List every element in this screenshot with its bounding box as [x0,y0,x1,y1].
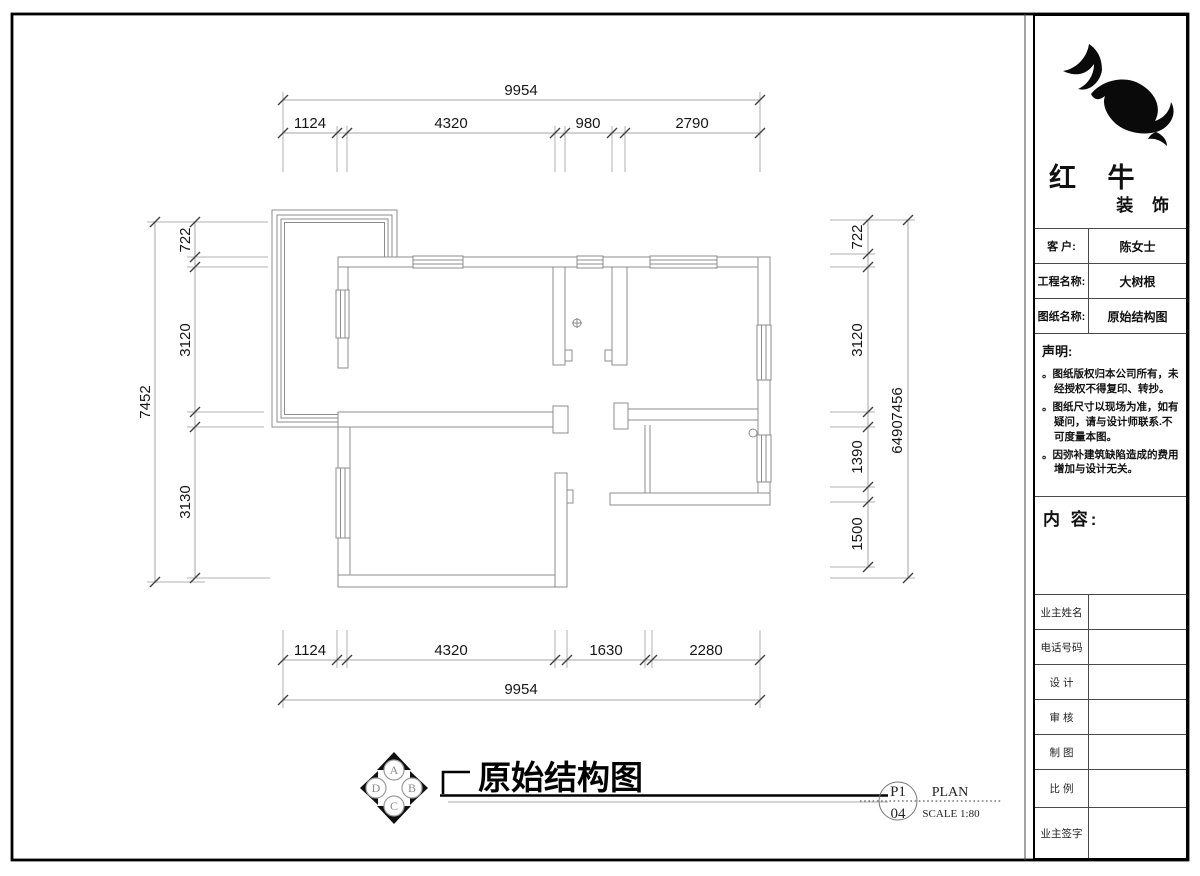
dim-right-seg1: 722 [849,224,866,249]
dimension-left: 7452 722 3120 3130 [137,217,270,587]
compass-letter-c: C [390,799,398,813]
dim-top-seg4: 2790 [675,115,708,132]
info-row-project: 工程名称: 大树根 [1035,263,1186,298]
drawing-title: 原始结构图 [440,759,888,802]
dim-right-seg4: 1500 [849,517,866,550]
dim-top-seg3: 980 [575,115,600,132]
window-right-upper [757,325,771,380]
dim-bottom-seg1: 1124 [294,642,326,659]
brand-suffix: 装 饰 [1116,191,1176,216]
dimension-top: 9954 1124 4320 980 2790 [278,82,765,172]
owner-name-cell [1089,595,1186,629]
window-top-3 [650,256,717,268]
scale-label: SCALE 1:80 [922,808,980,820]
dim-top-seg1: 1124 [294,115,326,132]
project-value: 大树根 [1089,264,1186,298]
drafter-cell [1089,735,1186,769]
form-row-designer: 设 计 [1035,664,1186,699]
reviewer-cell [1089,700,1186,734]
wall-bottom-left-room [338,575,567,587]
dim-left-overall: 7452 [137,385,154,418]
form-row-reviewer: 审 核 [1035,699,1186,734]
dimension-right: 722 3120 1390 1500 7456 6490 [830,215,915,583]
window-top-1 [413,256,463,268]
scale-row-label: 比 例 [1035,770,1089,807]
wall-bottom-right-room [610,493,770,505]
designer-label: 设 计 [1035,665,1089,699]
door-jamb-bottom-room [567,490,573,503]
statement-section: 声明: 。图纸版权归本公司所有，未经授权不得复印、转抄。 。图纸尺寸以现场为准，… [1035,333,1186,496]
wall-bathroom-end-cap [614,403,628,429]
wall-bathroom-top [628,409,758,420]
form-row-drafter: 制 图 [1035,734,1186,769]
window-right-lower [757,435,771,482]
wall-middle-end-cap [553,406,568,433]
door-jamb-right [605,350,612,361]
fixtures [572,318,757,493]
dimension-bottom: 1124 4320 1630 2280 9954 [278,630,765,708]
content-label: 内 容: [1043,505,1178,530]
dim-left-seg1: 722 [177,227,194,252]
dim-right-overall-a: 7456 [889,387,906,420]
balcony-outline [272,210,397,427]
window-top-2 [577,256,603,268]
project-label: 工程名称: [1035,264,1089,298]
north-compass-icon: A B C D [360,752,428,824]
title-block: 红 牛 装 饰 客 户: 陈女士 工程名称: 大树根 图纸名称: 原始结构图 声… [1033,14,1188,860]
page-border [12,14,1188,860]
walls [338,257,770,587]
client-value: 陈女士 [1089,229,1186,263]
dim-right-overall-b: 6490 [889,420,906,453]
dim-right-seg2: 3120 [849,323,866,356]
plan-label: PLAN [932,785,969,800]
door-jamb-left [565,350,572,361]
compass-letter-d: D [372,781,381,795]
wall-middle [338,412,553,427]
statement-item: 。因弥补建筑缺陷造成的费用增加与设计无关。 [1042,448,1180,478]
pivot-symbol [572,318,582,328]
form-row-phone: 电话号码 [1035,629,1186,664]
owner-signature-label: 业主签字 [1035,808,1089,858]
dim-bottom-seg2: 4320 [434,642,467,659]
client-label: 客 户: [1035,229,1089,263]
dim-bottom-overall: 9954 [504,681,537,698]
reviewer-label: 审 核 [1035,700,1089,734]
owner-signature-cell [1089,808,1186,858]
content-section: 内 容: [1035,496,1186,594]
title-corner-bracket [443,772,470,794]
dim-top-overall: 9954 [504,82,537,99]
brand-section: 红 牛 装 饰 [1035,16,1186,228]
drawing-sheet: 9954 1124 4320 980 2790 1124 4320 1630 2… [0,0,1200,876]
window-left-lower [336,468,350,538]
phone-label: 电话号码 [1035,630,1089,664]
dim-bottom-seg4: 2280 [689,642,722,659]
dim-right-seg3: 1390 [849,440,866,473]
bull-swoosh-logo-icon [1057,42,1181,154]
designer-cell [1089,665,1186,699]
dim-left-seg3: 3130 [177,485,194,518]
wall-bottom-room-right [555,473,567,587]
scale-cell [1089,770,1186,807]
statement-item: 。图纸版权归本公司所有，未经授权不得复印、转抄。 [1042,367,1180,397]
dim-left-seg2: 3120 [177,323,194,356]
drawing-title-text: 原始结构图 [478,759,643,796]
info-row-client: 客 户: 陈女士 [1035,228,1186,263]
sheet-number: P1 [890,784,906,800]
info-row-sheet: 图纸名称: 原始结构图 [1035,298,1186,333]
brand-name: 红 牛 [1049,156,1147,195]
wall-hall-right [612,267,627,365]
compass-letter-a: A [390,763,399,777]
window-balcony-wall [336,290,349,338]
drafter-label: 制 图 [1035,735,1089,769]
dim-top-seg2: 4320 [434,115,467,132]
form-row-owner-name: 业主姓名 [1035,594,1186,629]
page-number: 04 [891,806,907,822]
sheet-label: 图纸名称: [1035,299,1089,333]
compass-letter-b: B [408,781,416,795]
drain-symbol [749,429,757,437]
dim-bottom-seg3: 1630 [589,642,622,659]
owner-name-label: 业主姓名 [1035,595,1089,629]
form-row-owner-signature: 业主签字 [1035,807,1186,858]
statement-title: 声明: [1042,341,1180,360]
statement-item: 。图纸尺寸以现场为准，如有疑问，请与设计师联系.不可度量本图。 [1042,400,1180,445]
plan-canvas: 9954 1124 4320 980 2790 1124 4320 1630 2… [0,0,1200,876]
signature-table: 业主姓名 电话号码 设 计 审 核 制 图 比 例 业主签字 [1035,594,1186,858]
form-row-scale: 比 例 [1035,769,1186,807]
sheet-value: 原始结构图 [1089,299,1186,333]
wall-hall-left [553,267,565,365]
phone-cell [1089,630,1186,664]
